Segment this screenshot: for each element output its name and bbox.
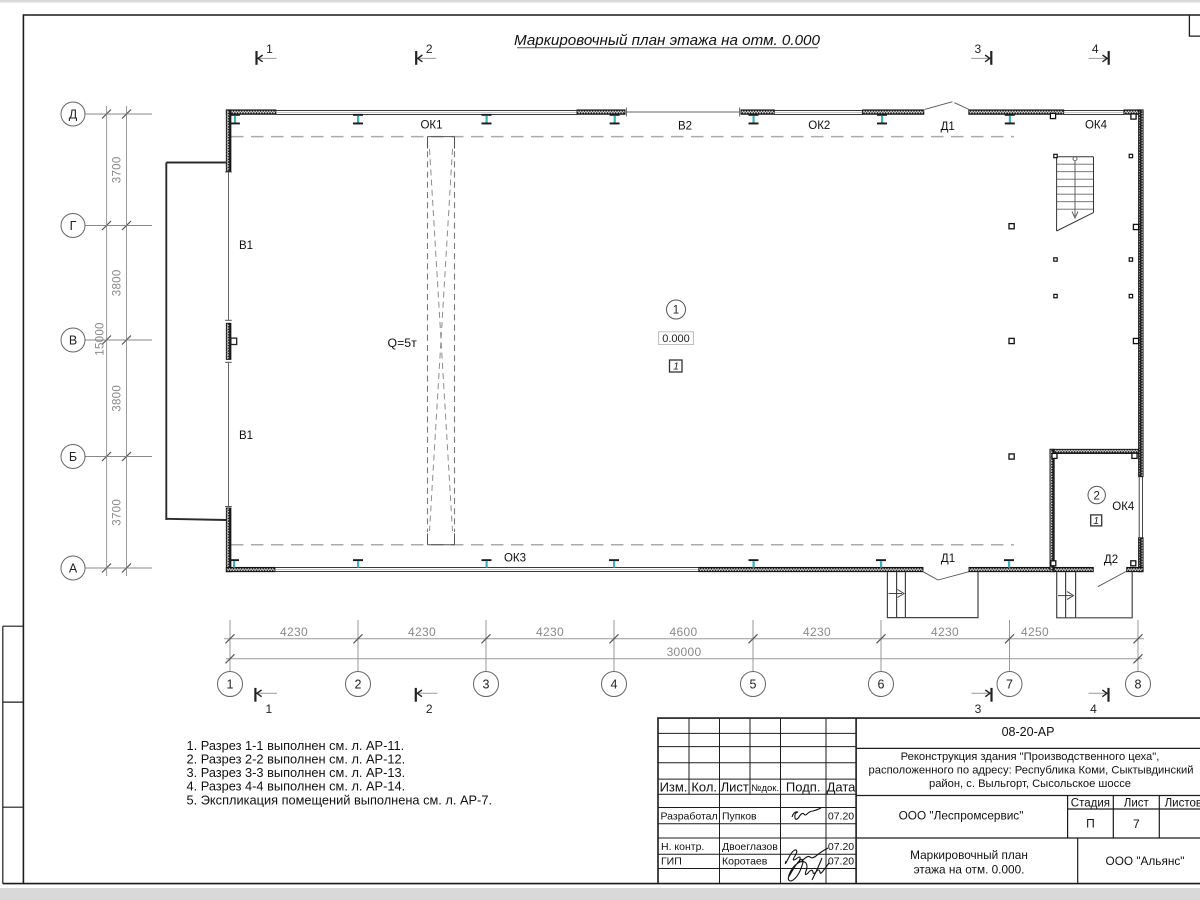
svg-text:Пупков: Пупков bbox=[722, 810, 757, 822]
svg-text:7: 7 bbox=[1006, 678, 1013, 692]
svg-text:В2: В2 bbox=[678, 121, 692, 133]
svg-text:4230: 4230 bbox=[536, 625, 564, 639]
svg-text:Г: Г bbox=[70, 219, 77, 233]
svg-text:07.20: 07.20 bbox=[828, 841, 854, 853]
svg-text:2: 2 bbox=[426, 702, 433, 716]
svg-text:15000: 15000 bbox=[95, 322, 107, 355]
svg-text:Коротаев: Коротаев bbox=[722, 856, 768, 868]
svg-text:7: 7 bbox=[1133, 817, 1140, 831]
svg-text:Дата: Дата bbox=[827, 780, 857, 795]
svg-text:5: 5 bbox=[750, 678, 757, 692]
svg-text:ОК4: ОК4 bbox=[1112, 501, 1135, 513]
svg-text:1: 1 bbox=[265, 702, 272, 716]
svg-text:Q=5т: Q=5т bbox=[388, 336, 418, 350]
svg-text:4250: 4250 bbox=[1021, 625, 1049, 639]
svg-text:3: 3 bbox=[975, 702, 982, 716]
svg-text:этажа на отм. 0.000.: этажа на отм. 0.000. bbox=[914, 862, 1025, 876]
svg-text:Реконструкция здания "Производ: Реконструкция здания "Производственного … bbox=[901, 751, 1160, 763]
svg-text:3800: 3800 bbox=[112, 385, 124, 412]
svg-text:ОК4: ОК4 bbox=[1085, 120, 1108, 132]
svg-text:Стадия: Стадия bbox=[1071, 797, 1110, 809]
svg-text:Маркировочный план этажа на от: Маркировочный план этажа на отм. 0.000 bbox=[514, 32, 820, 49]
svg-text:3700: 3700 bbox=[112, 499, 124, 526]
svg-text:В: В bbox=[69, 334, 77, 348]
svg-text:А: А bbox=[69, 562, 78, 576]
svg-text:4230: 4230 bbox=[408, 625, 436, 639]
svg-text:ООО "Альянс": ООО "Альянс" bbox=[1106, 854, 1185, 868]
svg-text:Д2: Д2 bbox=[1104, 554, 1118, 566]
svg-text:4: 4 bbox=[611, 678, 618, 692]
svg-text:08-20-АР: 08-20-АР bbox=[1002, 725, 1055, 739]
svg-text:Разработал: Разработал bbox=[661, 810, 718, 822]
svg-text:Д: Д bbox=[69, 108, 78, 122]
svg-text:3800: 3800 bbox=[112, 269, 124, 296]
svg-text:район, с. Выльгорт, Сысольское: район, с. Выльгорт, Сысольское шоссе bbox=[929, 778, 1131, 790]
svg-text:1: 1 bbox=[673, 361, 679, 373]
svg-text:0.000: 0.000 bbox=[662, 333, 690, 345]
svg-text:Н. контр.: Н. контр. bbox=[661, 841, 704, 853]
svg-text:Листов: Листов bbox=[1165, 797, 1200, 809]
svg-text:4230: 4230 bbox=[803, 625, 831, 639]
svg-text:07.20: 07.20 bbox=[828, 810, 854, 822]
svg-text:4. Разрез 4-4 выполнен см. л.: 4. Разрез 4-4 выполнен см. л. АР-14. bbox=[187, 779, 406, 794]
svg-text:№док.: №док. bbox=[751, 783, 779, 794]
svg-text:ГИП: ГИП bbox=[661, 856, 682, 868]
svg-text:Маркировочный план: Маркировочный план bbox=[910, 848, 1028, 862]
svg-text:Лист: Лист bbox=[1124, 797, 1150, 809]
svg-text:В1: В1 bbox=[239, 240, 253, 252]
svg-text:Д1: Д1 bbox=[941, 121, 955, 133]
svg-text:Лист: Лист bbox=[721, 780, 749, 795]
svg-text:В1: В1 bbox=[239, 430, 253, 442]
svg-text:Двоеглазов: Двоеглазов bbox=[722, 841, 778, 853]
svg-text:Кол.: Кол. bbox=[691, 780, 717, 795]
svg-text:ОК2: ОК2 bbox=[808, 120, 830, 132]
svg-text:ООО "Леспромсервис": ООО "Леспромсервис" bbox=[899, 809, 1024, 823]
svg-text:1: 1 bbox=[227, 678, 234, 692]
svg-text:Изм.: Изм. bbox=[660, 780, 688, 795]
svg-text:2: 2 bbox=[426, 42, 433, 56]
svg-text:8: 8 bbox=[1135, 678, 1142, 692]
svg-text:3700: 3700 bbox=[112, 156, 124, 183]
svg-text:4230: 4230 bbox=[931, 625, 959, 639]
svg-text:ОК1: ОК1 bbox=[420, 120, 442, 132]
svg-text:3: 3 bbox=[483, 678, 490, 692]
svg-text:2: 2 bbox=[355, 678, 362, 692]
svg-text:Д1: Д1 bbox=[941, 553, 955, 565]
svg-text:ОК3: ОК3 bbox=[504, 553, 526, 565]
svg-text:1: 1 bbox=[266, 42, 273, 56]
svg-text:расположенного по адресу: Респ: расположенного по адресу: Республика Ком… bbox=[869, 764, 1194, 776]
svg-text:30000: 30000 bbox=[667, 645, 702, 659]
svg-text:1: 1 bbox=[673, 305, 679, 317]
svg-text:4: 4 bbox=[1092, 42, 1099, 56]
svg-text:4600: 4600 bbox=[670, 625, 698, 639]
svg-text:П: П bbox=[1086, 817, 1095, 831]
svg-text:Подп.: Подп. bbox=[786, 780, 821, 795]
svg-text:6: 6 bbox=[878, 678, 885, 692]
svg-text:3: 3 bbox=[974, 42, 981, 56]
svg-text:2: 2 bbox=[1093, 490, 1099, 502]
svg-text:07.20: 07.20 bbox=[828, 856, 854, 868]
svg-text:5. Экспликация помещений выпол: 5. Экспликация помещений выполнена см. л… bbox=[187, 793, 493, 808]
svg-text:1: 1 bbox=[1093, 516, 1099, 527]
svg-text:4230: 4230 bbox=[280, 625, 308, 639]
svg-text:4: 4 bbox=[1090, 702, 1097, 716]
svg-text:Б: Б bbox=[69, 450, 77, 464]
